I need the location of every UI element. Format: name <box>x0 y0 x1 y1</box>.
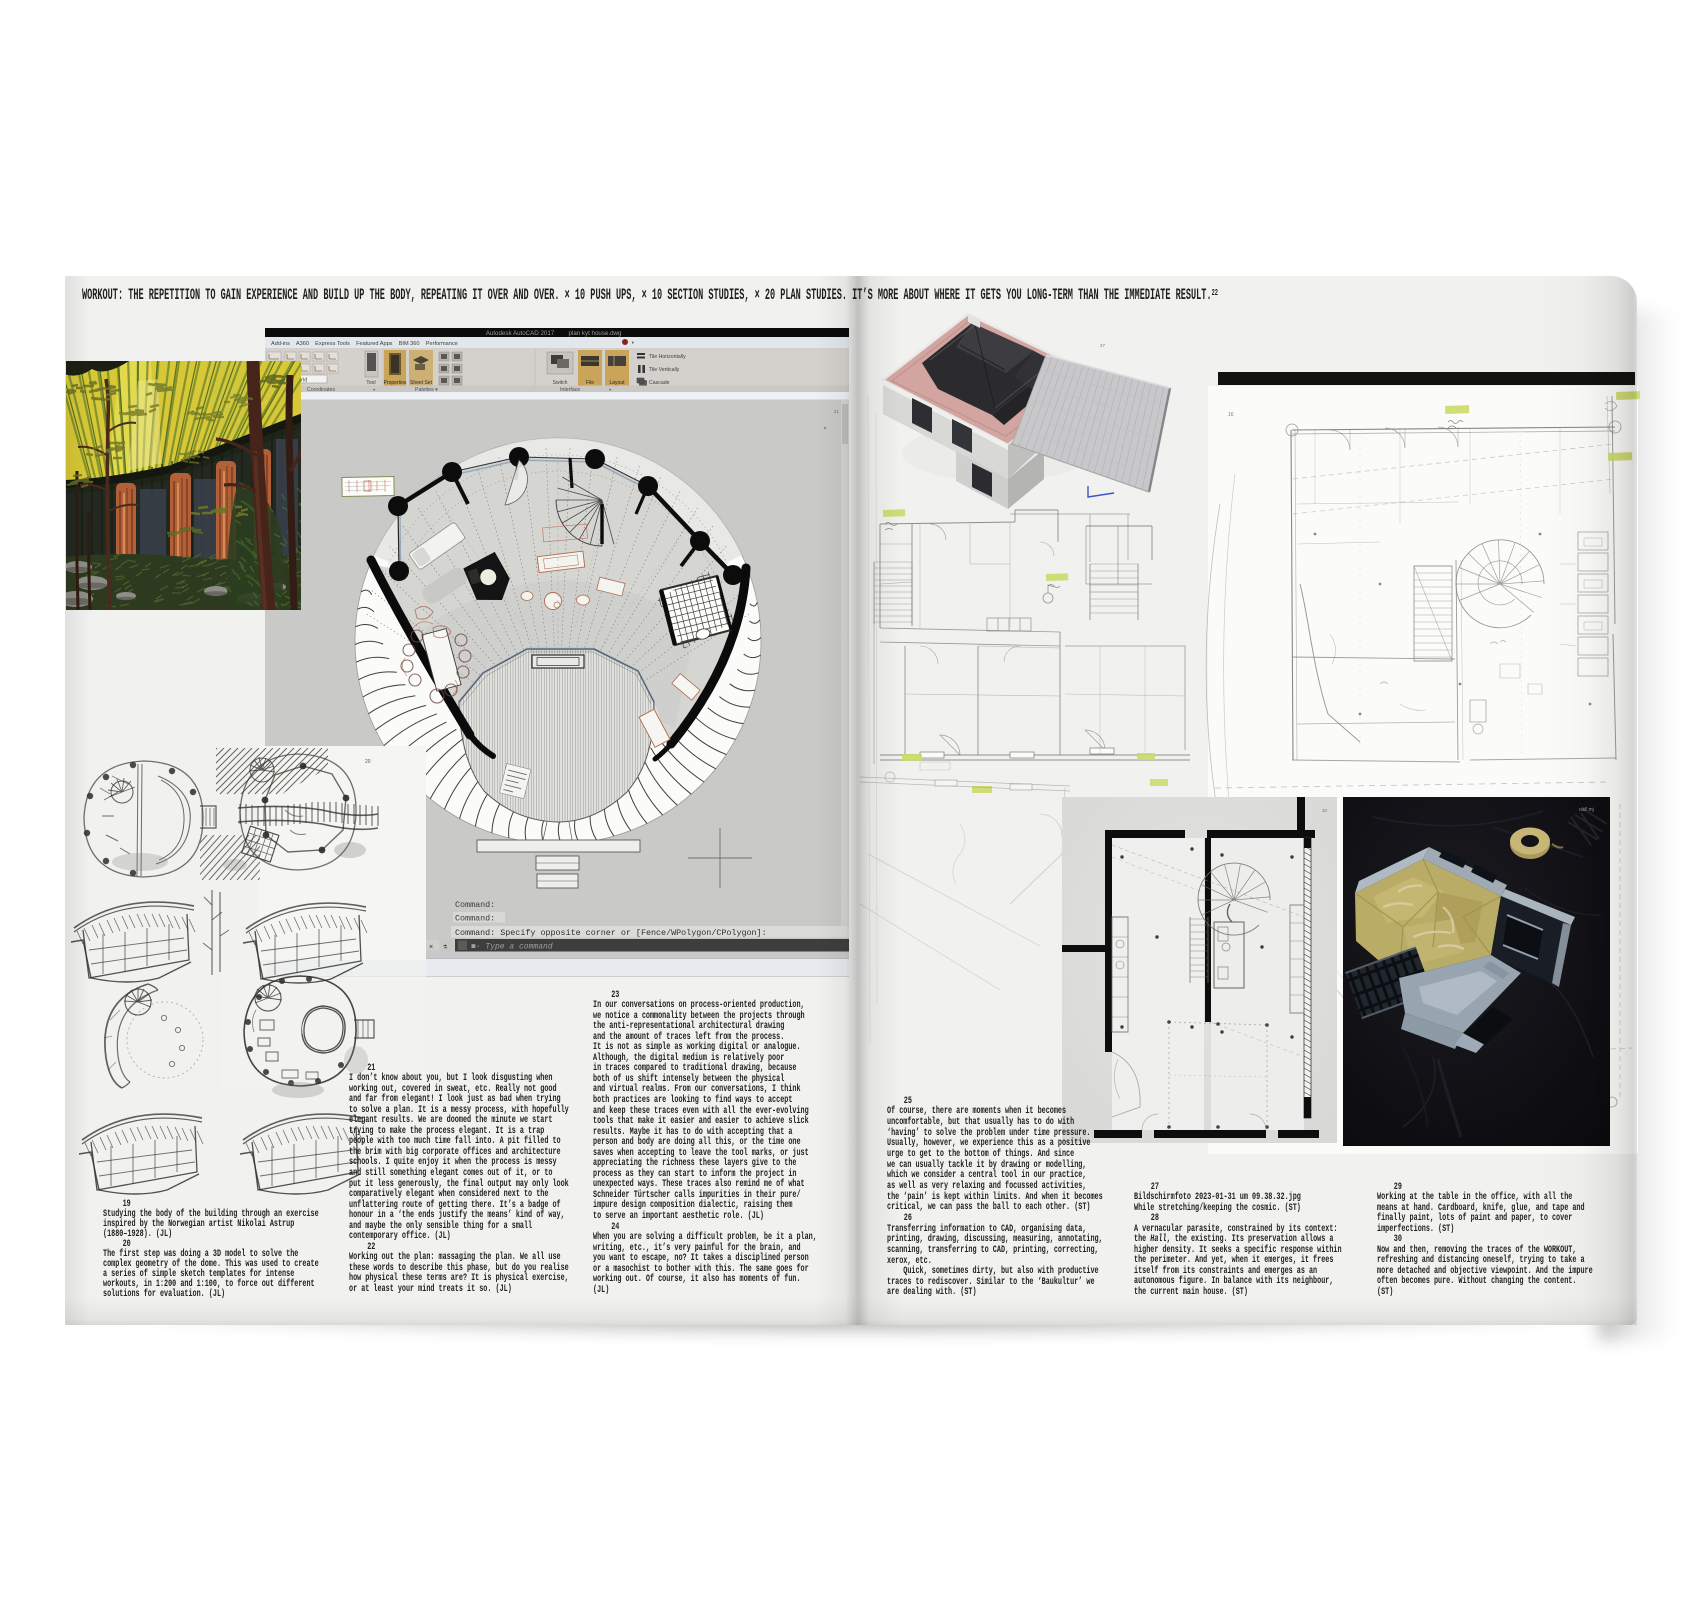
svg-text:20: 20 <box>365 759 371 765</box>
svg-text:Cascade: Cascade <box>649 380 670 386</box>
svg-text:Interface: Interface <box>560 387 580 393</box>
svg-text:27: 27 <box>1100 343 1106 348</box>
svg-text:▸: ▸ <box>609 387 612 393</box>
svg-text:plan kyt house.dwg: plan kyt house.dwg <box>569 330 623 337</box>
svg-text:■· Type a command: ■· Type a command <box>471 943 553 952</box>
svg-text:Autodesk AutoCAD 2017: Autodesk AutoCAD 2017 <box>486 330 555 337</box>
svg-text:Command:: Command: <box>455 900 495 910</box>
svg-text:Command:: Command: <box>455 914 495 924</box>
svg-text:Properties: Properties <box>384 380 407 386</box>
svg-text:▾: ▾ <box>631 340 635 347</box>
svg-text:Palettes ▾: Palettes ▾ <box>415 387 438 393</box>
svg-text:▸: ▸ <box>373 387 376 393</box>
svg-text:Tile Vertically: Tile Vertically <box>649 367 680 373</box>
svg-text:Coordinates: Coordinates <box>307 387 335 393</box>
svg-text:Add-ins A360 Express Too: Add-ins A360 Express Tools Featured Apps… <box>271 341 458 347</box>
svg-text:Command: Specify opposite corn: Command: Specify opposite corner or [Fen… <box>455 928 767 938</box>
svg-text:16: 16 <box>1228 412 1234 418</box>
svg-text:30: 30 <box>1322 808 1328 813</box>
svg-text:Tile Horizontally: Tile Horizontally <box>649 354 686 360</box>
